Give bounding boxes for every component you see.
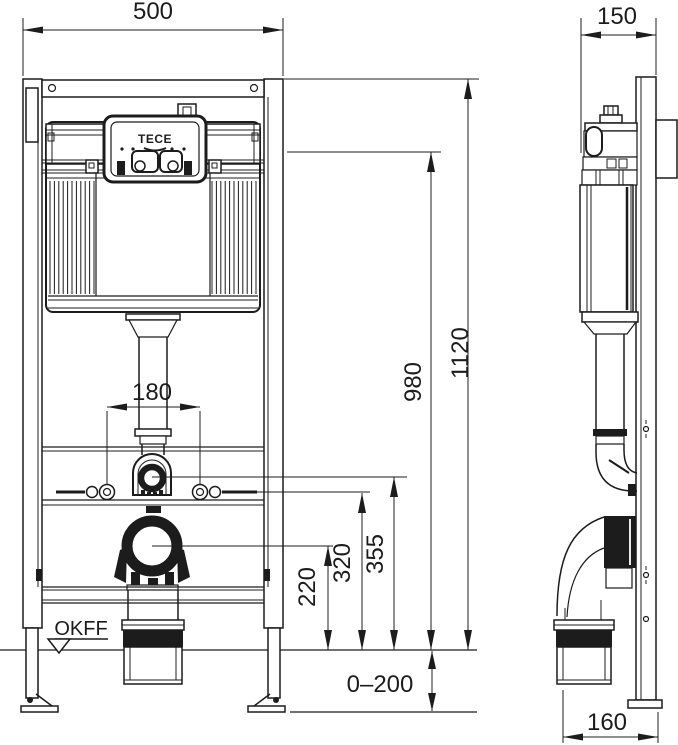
dim-leg-adjustment: 0–200 <box>347 651 436 711</box>
flush-pipe-socket <box>141 467 163 489</box>
cistern-profile <box>580 106 638 334</box>
svg-text:320: 320 <box>329 543 356 583</box>
floor-label: OKFF <box>54 618 107 640</box>
svg-text:150: 150 <box>597 3 637 30</box>
fill-valve-pill <box>586 127 602 156</box>
svg-text:180: 180 <box>132 379 172 406</box>
flush-pipe-side <box>593 334 637 496</box>
flush-bend-connection <box>133 454 171 496</box>
floor-level-marker: OKFF <box>48 618 108 653</box>
dim-fixing-height: 320 <box>329 493 366 650</box>
access-panel: TECE <box>104 116 206 182</box>
side-view <box>554 77 677 708</box>
svg-text:1120: 1120 <box>447 327 474 379</box>
svg-text:220: 220 <box>294 567 321 607</box>
brand-logo: TECE <box>138 132 172 146</box>
bracket-tab <box>146 506 161 513</box>
wall-anchor-bracket <box>26 88 38 142</box>
waste-bend-side <box>554 516 636 684</box>
svg-text:0–200: 0–200 <box>347 671 414 698</box>
svg-text:500: 500 <box>133 0 173 25</box>
elbow-inner <box>624 444 637 473</box>
dim-frame-width: 500 <box>23 0 283 76</box>
connection-sleeve <box>604 516 636 568</box>
technical-drawing-svg: TECE <box>0 0 678 745</box>
elbow-outer <box>596 444 637 491</box>
level-triangle-icon <box>48 639 70 653</box>
installation-drawing: TECE <box>0 0 678 745</box>
waste-outlet <box>114 521 190 590</box>
dim-outlet-height: 220 <box>294 546 332 650</box>
water-connection <box>604 106 618 115</box>
frame-upright-left <box>23 79 42 698</box>
wall-mount-box <box>656 120 677 178</box>
frame-upright-right <box>264 79 283 698</box>
svg-text:980: 980 <box>400 362 427 402</box>
svg-text:160: 160 <box>587 709 627 736</box>
dim-flush-bend-height: 355 <box>362 477 398 650</box>
waste-pipe-front <box>122 590 184 684</box>
svg-text:355: 355 <box>362 534 389 574</box>
